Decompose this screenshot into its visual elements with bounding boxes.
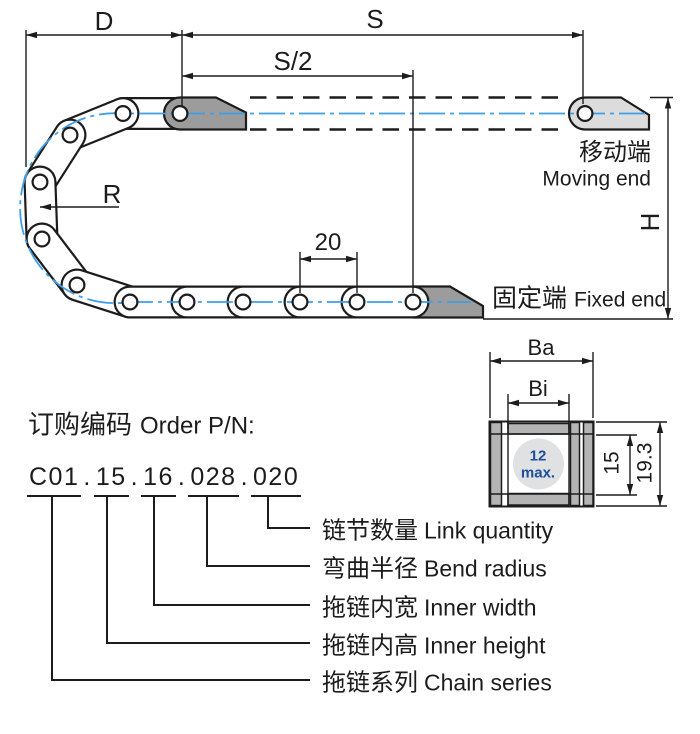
callout-link-quantity-en: Link quantity [424,518,553,545]
moving-end-label-en: Moving end [542,169,651,190]
fixed-end-label: 固定端 Fixed end [492,287,666,312]
callout-inner-width: 拖链内宽 Inner width [322,588,537,623]
callout-chain-series: 拖链系列 Chain series [322,663,552,698]
callout-link-quantity: 链节数量 Link quantity [322,511,553,546]
order-title-en: Order P/N: [140,415,255,439]
callout-inner-height-zh: 拖链内高 [322,626,418,661]
dim-label-bi: Bi [528,378,548,400]
dim-label-d: D [95,8,114,34]
callout-inner-height: 拖链内高 Inner height [322,626,545,661]
dim-label-outer-height: 19.3 [635,443,656,484]
dim-label-h: H [637,213,663,232]
code-separator: . [241,463,249,492]
callout-inner-height-en: Inner height [424,633,545,660]
dim-label-s: S [366,6,383,32]
dim-label-ba: Ba [528,337,555,359]
callout-link-quantity-zh: 链节数量 [322,511,418,546]
order-title: 订购编码 Order P/N: [28,412,255,439]
code-segment-quantity: 020 [251,463,301,497]
moving-end-label-zh: 移动端 [579,141,651,165]
code-separator: . [178,463,186,492]
dim-label-r: R [103,181,122,207]
dim-label-pitch: 20 [315,231,342,255]
code-segment-width: 16 [141,463,176,497]
order-title-zh: 订购编码 [28,412,132,438]
code-segment-radius: 028 [188,463,238,497]
dim-label-s-half: S/2 [273,48,312,74]
callout-chain-series-zh: 拖链系列 [322,663,418,698]
code-separator: . [131,463,139,492]
drag-chain-drawing: D S S/2 R 20 H 移动端 Moving end 固定端 Fixed … [0,0,700,734]
drawing-linework [0,0,700,734]
cable-note-suffix: max. [521,466,555,481]
callout-bend-radius: 弯曲半径 Bend radius [322,549,547,584]
callout-lines [52,496,310,680]
callout-chain-series-en: Chain series [424,670,552,697]
dim-label-inner-height: 15 [602,451,623,474]
code-segment-series: C01 [27,463,81,497]
callout-bend-radius-zh: 弯曲半径 [322,549,418,584]
code-separator: . [83,463,91,492]
fixed-end-label-en: Fixed end [574,290,666,311]
fixed-end-label-zh: 固定端 [492,287,567,312]
order-code: C01 . 15 . 16 . 028 . 020 [27,463,301,497]
code-segment-height: 15 [94,463,129,497]
callout-inner-width-zh: 拖链内宽 [322,588,418,623]
callout-inner-width-en: Inner width [424,595,537,622]
cable-note-value: 12 [530,449,547,464]
callout-bend-radius-en: Bend radius [424,556,547,583]
